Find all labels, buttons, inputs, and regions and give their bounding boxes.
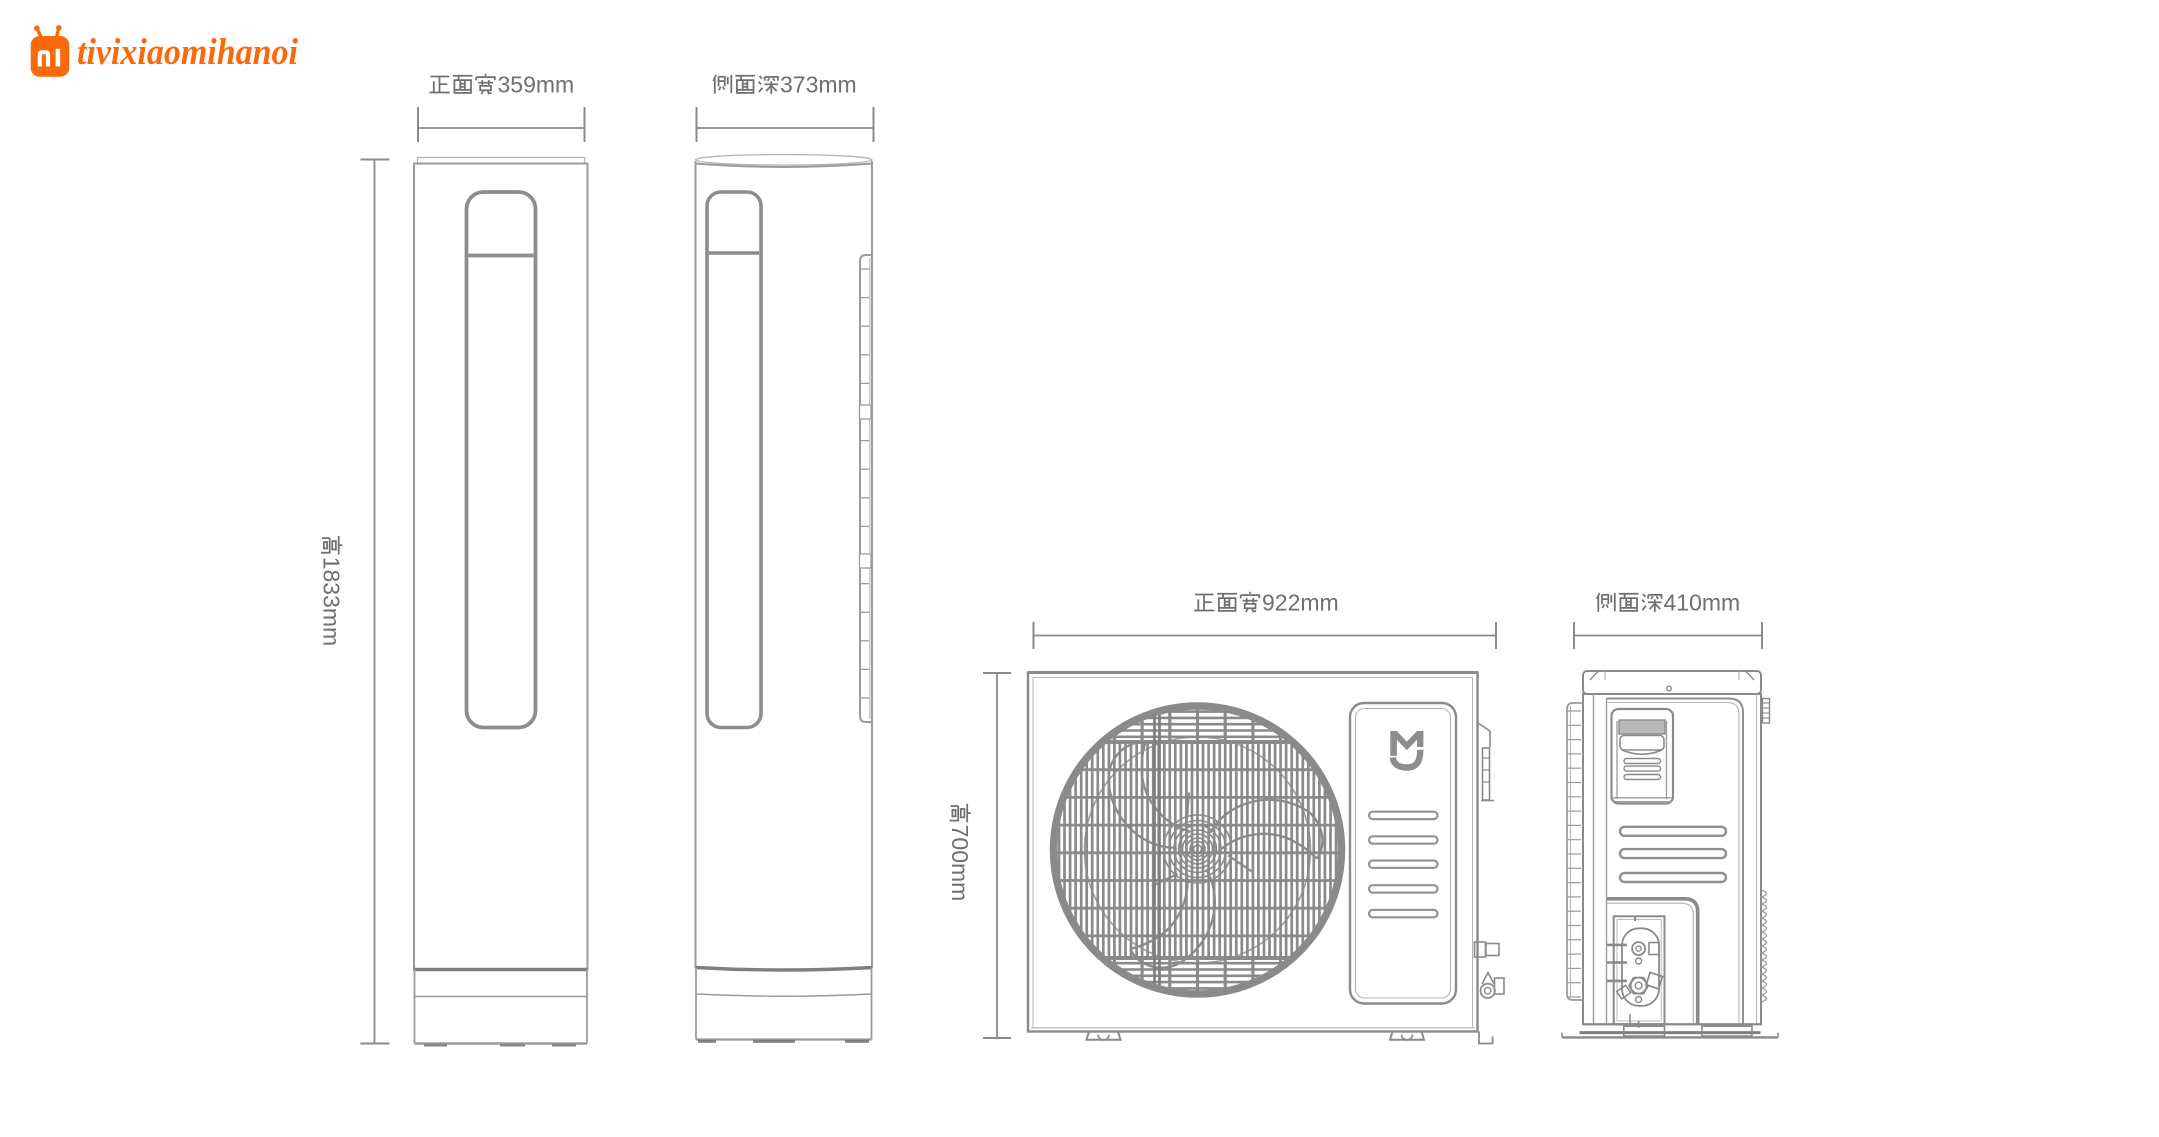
svg-text:tivixiaomihanoi: tivixiaomihanoi (77, 32, 299, 73)
svg-text:922mm: 922mm (1262, 589, 1339, 615)
svg-text:359mm: 359mm (498, 71, 575, 97)
svg-text:700mm: 700mm (947, 825, 973, 902)
svg-text:410mm: 410mm (1664, 589, 1741, 615)
svg-text:1833mm: 1833mm (319, 557, 345, 646)
svg-text:373mm: 373mm (780, 71, 857, 97)
